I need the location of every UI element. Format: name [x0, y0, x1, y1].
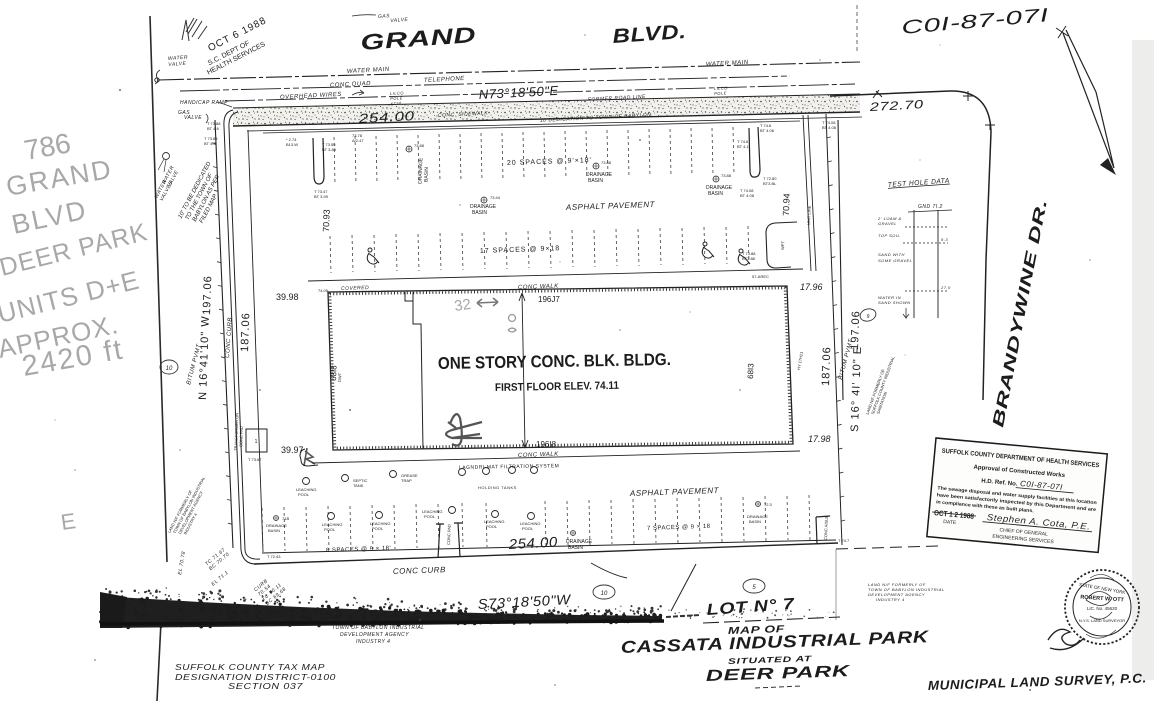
svg-text:272.70: 272.70: [868, 97, 924, 114]
svg-text:SUFFOLK COUNTY TAX MAP: SUFFOLK COUNTY TAX MAP: [175, 662, 325, 672]
svg-text:DATE: DATE: [943, 519, 957, 526]
svg-text:SOME GRAVEL: SOME GRAVEL: [878, 258, 912, 263]
svg-text:HOLDING TANKS: HOLDING TANKS: [478, 485, 517, 490]
svg-text:17.98: 17.98: [808, 434, 831, 444]
svg-text:B13.W: B13.W: [286, 142, 298, 147]
svg-text:57-AREC: 57-AREC: [752, 274, 769, 279]
svg-text:27.0: 27.0: [940, 285, 951, 290]
svg-text:BASIN: BASIN: [424, 167, 431, 183]
svg-text:BT 4.06: BT 4.06: [760, 128, 775, 133]
svg-text:CONC PAD: CONC PAD: [446, 524, 452, 545]
svg-text:BT 4.1: BT 4.1: [737, 144, 749, 149]
svg-text:ONE STORY CONC. BLK. BLDG.: ONE STORY CONC. BLK. BLDG.: [438, 350, 671, 373]
svg-text:BASIN: BASIN: [268, 528, 280, 533]
svg-text:T 72.43: T 72.43: [267, 554, 281, 559]
svg-text:POOL: POOL: [424, 514, 436, 519]
svg-text:SAND SHOWN: SAND SHOWN: [878, 300, 911, 305]
svg-text:BASIN: BASIN: [749, 519, 761, 524]
svg-text:BT3.BL: BT3.BL: [763, 181, 777, 186]
svg-text:CONC CURB: CONC CURB: [393, 565, 446, 576]
svg-text:POOL: POOL: [522, 526, 534, 531]
svg-text:TOWN OF BABYLON INDUSTRIAL: TOWN OF BABYLON INDUSTRIAL: [332, 625, 425, 631]
svg-text:39.98: 39.98: [276, 292, 299, 302]
svg-text:VALVE: VALVE: [390, 17, 409, 24]
svg-text:17.96: 17.96: [800, 282, 823, 292]
svg-text:CONC AISLE: CONC AISLE: [823, 516, 829, 540]
svg-text:GRAVEL: GRAVEL: [878, 221, 897, 226]
svg-text:196J7: 196J7: [538, 295, 560, 304]
svg-text:1: 1: [255, 439, 258, 445]
svg-text:BASIN: BASIN: [708, 191, 723, 197]
svg-text:187.06: 187.06: [239, 312, 252, 352]
svg-text:POOL: POOL: [486, 524, 498, 529]
svg-text:POOL: POOL: [372, 526, 384, 531]
svg-text:SECTION 037: SECTION 037: [228, 681, 303, 691]
svg-text:TRAP: TRAP: [401, 478, 412, 483]
svg-text:POOL: POOL: [324, 527, 336, 532]
svg-text:WPT: WPT: [780, 240, 785, 250]
svg-text:254.00: 254.00: [507, 533, 558, 552]
svg-text:187.06: 187.06: [820, 346, 833, 386]
svg-text:BT 3.99: BT 3.99: [314, 194, 329, 199]
svg-text:BASIN: BASIN: [472, 210, 487, 216]
svg-text:70.94: 70.94: [781, 193, 792, 216]
svg-text:FIRST FLOOR ELEV. 74.11: FIRST FLOOR ELEV. 74.11: [495, 380, 619, 394]
svg-text:POOL: POOL: [298, 492, 310, 497]
svg-text:197.06: 197.06: [201, 275, 214, 315]
svg-text:BT 4.08: BT 4.08: [740, 193, 755, 198]
svg-text:71B: 71B: [282, 516, 289, 521]
svg-text:73.88: 73.88: [721, 173, 732, 178]
svg-text:TANK: TANK: [353, 483, 364, 488]
svg-text:196I8: 196I8: [536, 440, 557, 449]
svg-text:32: 32: [453, 296, 472, 315]
svg-text:254.00: 254.00: [357, 108, 415, 126]
svg-text:9: 9: [867, 314, 870, 320]
svg-text:73.44: 73.44: [490, 195, 501, 200]
svg-text:9.3: 9.3: [941, 237, 948, 242]
svg-text:73.88: 73.88: [601, 160, 612, 165]
svg-text:TOP SOIL: TOP SOIL: [878, 233, 900, 238]
svg-text:DWT: DWT: [337, 372, 342, 382]
svg-text:72.3: 72.3: [764, 502, 773, 507]
svg-text:10: 10: [166, 366, 173, 372]
svg-text:BT 4.08: BT 4.08: [822, 125, 837, 130]
svg-text:COVERED: COVERED: [341, 285, 369, 292]
svg-text:CONC PAD: CONC PAD: [238, 426, 244, 447]
svg-text:VALVE: VALVE: [168, 61, 187, 68]
svg-text:DEVELOPMENT AGENCY: DEVELOPMENT AGENCY: [340, 632, 409, 638]
svg-text:GND 7I.2: GND 7I.2: [918, 204, 943, 210]
svg-text:BT3.88: BT3.88: [742, 256, 756, 261]
svg-text:SAND WITH: SAND WITH: [878, 252, 905, 257]
svg-text:70.93: 70.93: [321, 209, 332, 232]
svg-text:GAS: GAS: [378, 13, 391, 20]
svg-text:VALVE: VALVE: [184, 115, 202, 121]
svg-text:BT 3.89: BT 3.89: [322, 147, 337, 152]
svg-text:BASIN: BASIN: [588, 178, 603, 184]
svg-text:A/2.47: A/2.47: [352, 138, 364, 143]
svg-text:LIC. No. 45620: LIC. No. 45620: [1087, 606, 1118, 611]
svg-text:T 73.67: T 73.67: [248, 457, 262, 462]
svg-text:74.05: 74.05: [318, 288, 329, 293]
svg-text:INDUSTRY 4: INDUSTRY 4: [876, 597, 905, 602]
svg-text:73.88: 73.88: [414, 143, 425, 148]
svg-text:INDUSTRY 4: INDUSTRY 4: [356, 639, 390, 645]
svg-text:T 74.7: T 74.7: [838, 538, 850, 543]
svg-text:BT 4.8: BT 4.8: [207, 126, 219, 131]
svg-text:68I3: 68I3: [746, 363, 756, 379]
svg-text:10: 10: [601, 591, 608, 597]
